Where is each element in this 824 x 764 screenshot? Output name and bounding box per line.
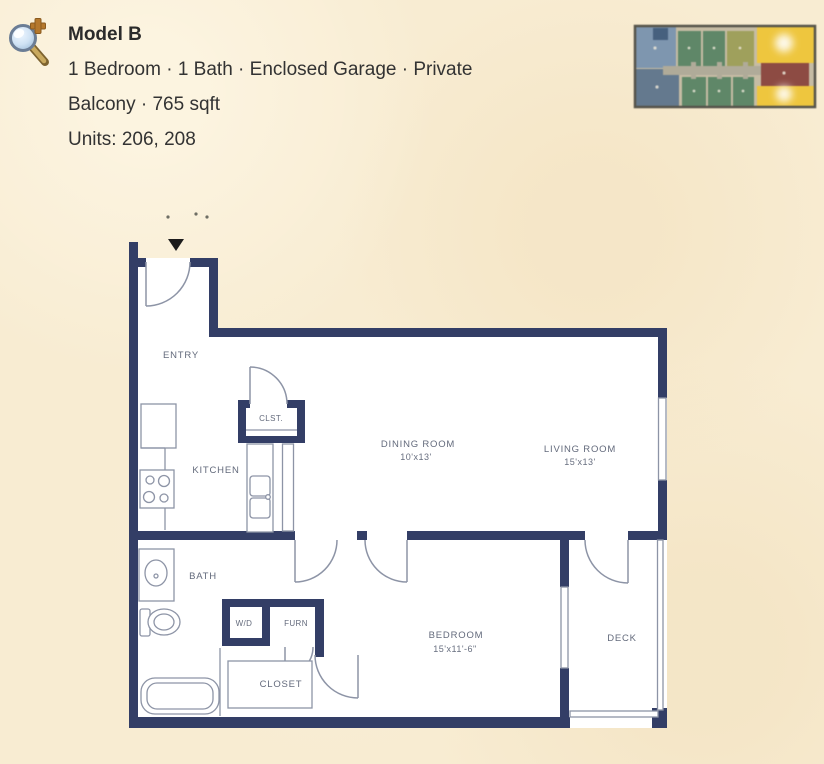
entry-arrow [168, 239, 184, 251]
room-label-furn: FURN [284, 619, 308, 628]
faucet [266, 495, 271, 500]
room-label-kitchen: KITCHEN [192, 465, 239, 476]
stove [140, 470, 174, 508]
sink-basin [250, 498, 270, 518]
room-label-deck: DECK [607, 633, 637, 644]
room-label-bedroom: BEDROOM [429, 630, 484, 641]
room-label-living: LIVING ROOM [544, 444, 616, 455]
bath-sink [145, 560, 167, 586]
page: { "page": { "background_color": "#f8ecd2… [0, 0, 824, 764]
fridge [141, 404, 176, 448]
room-label-bath: BATH [189, 571, 217, 582]
room-dims-bedroom: 15'x11'-6" [433, 644, 477, 654]
room-label-wd: W/D [236, 619, 253, 628]
reference-dots [166, 212, 208, 218]
room-dims-living: 15'x13' [564, 457, 595, 467]
floorplan-drawing: ENTRY CLST. KITCHEN DINING ROOM 10'x13' … [0, 0, 824, 764]
room-dims-dining: 10'x13' [400, 452, 431, 462]
room-label-dining: DINING ROOM [381, 439, 455, 450]
room-label-entry: ENTRY [163, 350, 199, 361]
room-label-clst: CLST. [259, 414, 283, 423]
sink-basin [250, 476, 270, 496]
room-label-closet: CLOSET [260, 679, 303, 690]
